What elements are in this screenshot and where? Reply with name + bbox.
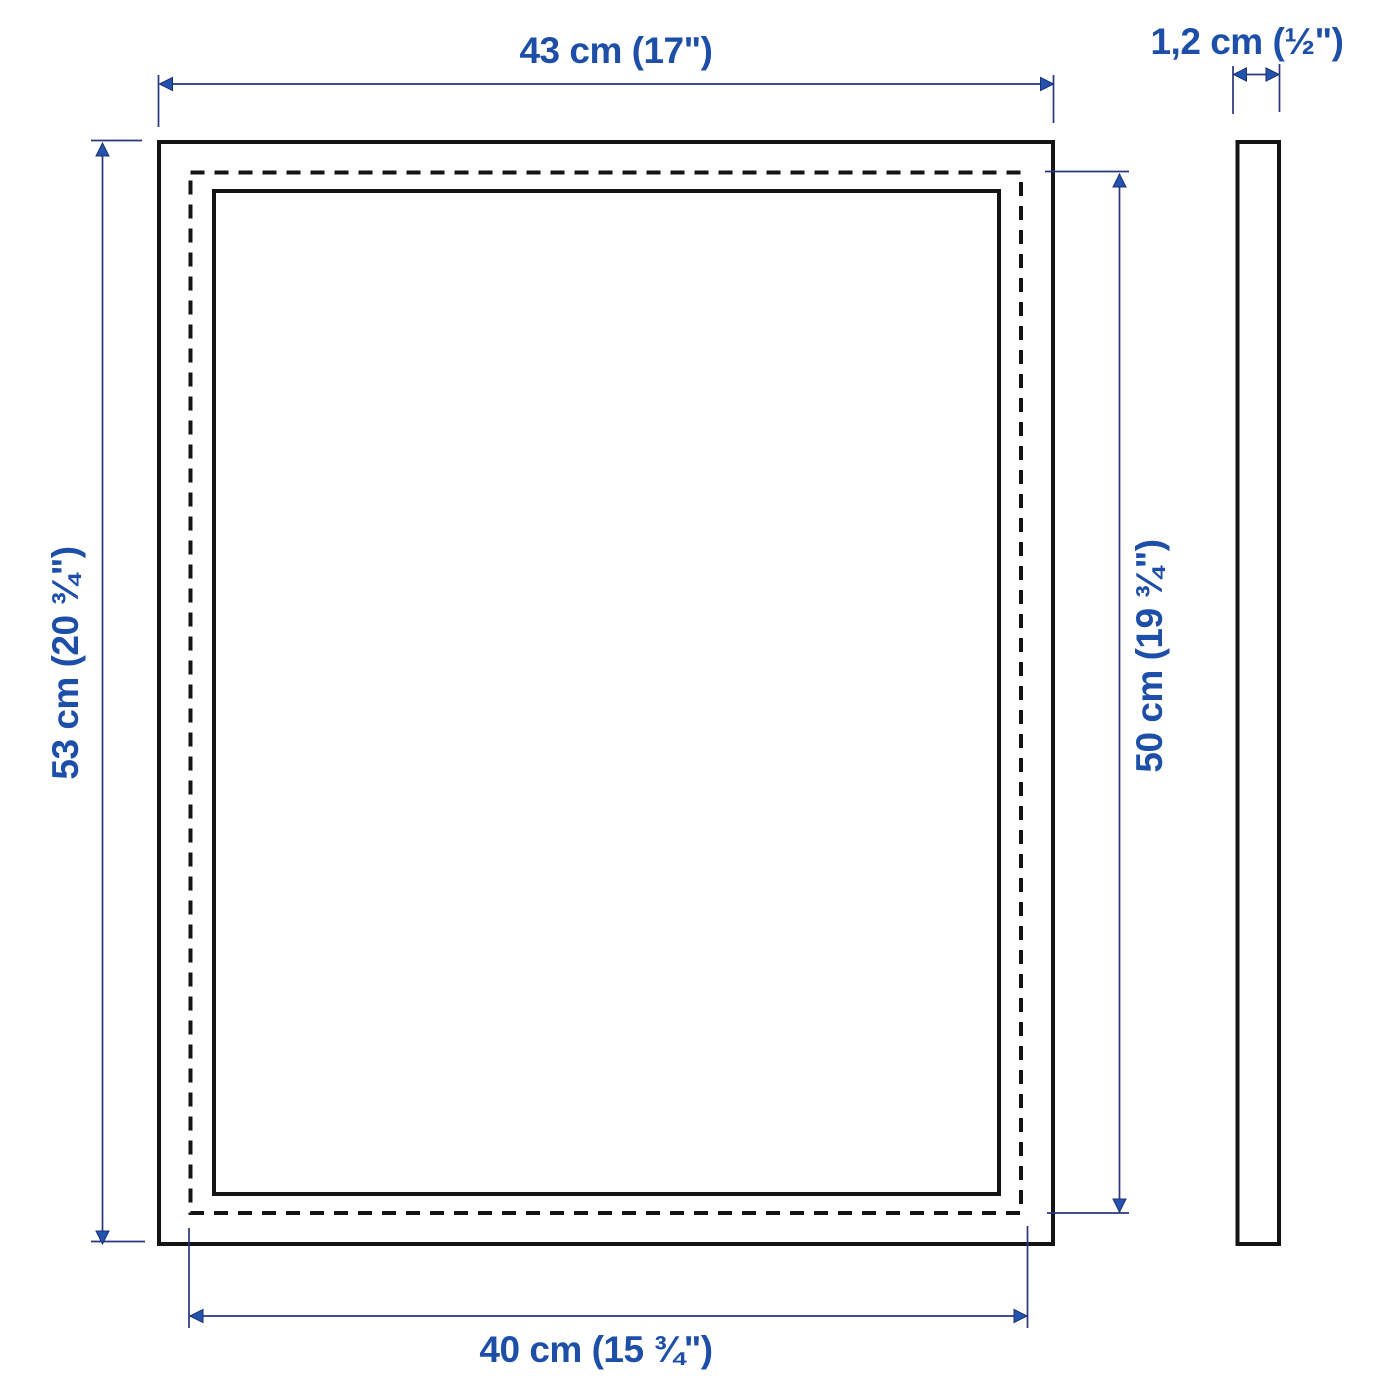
svg-text:43 cm (17"): 43 cm (17")	[519, 30, 712, 71]
svg-text:50 cm (19 ¾"): 50 cm (19 ¾")	[1129, 539, 1170, 772]
svg-text:40 cm (15 ¾"): 40 cm (15 ¾")	[479, 1329, 712, 1370]
svg-text:53 cm (20 ¾"): 53 cm (20 ¾")	[45, 546, 86, 779]
svg-text:1,2 cm (½"): 1,2 cm (½")	[1150, 21, 1343, 62]
